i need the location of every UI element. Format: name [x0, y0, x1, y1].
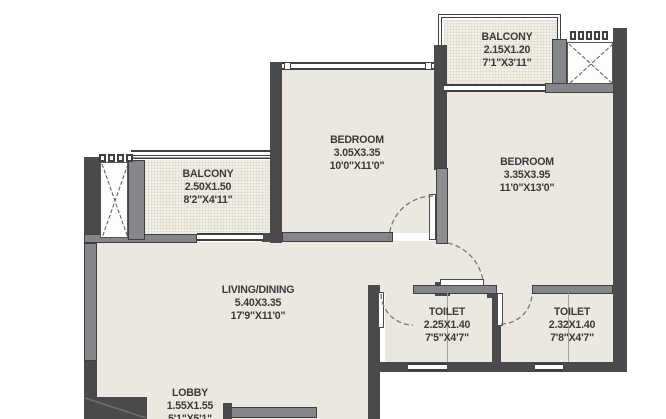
- toilet-1-door-leaf: [378, 292, 384, 328]
- room-label-toilet-1: TOILET 2.25X1.40 7'5"X4'7": [397, 306, 497, 345]
- bedroom-1-window-cap-left: [284, 62, 291, 70]
- room-label-toilet-2: TOILET 2.32X1.40 7'8"X4'7": [522, 306, 622, 345]
- bedroom-1-bottom-wall: [282, 232, 393, 242]
- bedroom-1-right-wall: [434, 45, 447, 170]
- railing-post: [99, 154, 106, 162]
- room-dim-ft: 8'2"X4'11": [148, 194, 267, 207]
- outer-wall-left-lower: [84, 360, 97, 399]
- room-dim-ft: 10'0"X11'0": [297, 160, 416, 173]
- room-label-living-dining: LIVING/DINING 5.40X3.35 17'9"X11'0": [198, 284, 317, 323]
- room-label-bedroom-1: BEDROOM 3.05X3.35 10'0"X11'0": [297, 134, 416, 173]
- room-dim-ft: 7'1"X3'11": [447, 57, 566, 70]
- room-label-bedroom-2: BEDROOM 3.35X3.95 11'0"X13'0": [467, 156, 586, 195]
- room-name: BALCONY: [447, 31, 566, 44]
- bedroom-1-top-window: [282, 62, 434, 70]
- toilet-2-top-wall: [532, 285, 613, 294]
- toilet-2-door-leaf: [497, 293, 503, 326]
- room-name: BEDROOM: [467, 156, 586, 169]
- room-name: BALCONY: [148, 168, 267, 181]
- room-dim-m: 3.05X3.35: [297, 147, 416, 160]
- living-window-end-stub: [262, 233, 272, 242]
- railing-post: [108, 154, 115, 162]
- room-label-balcony-top: BALCONY 2.15X1.20 7'1"X3'11": [447, 31, 566, 70]
- bedroom-1-door-leaf: [429, 194, 436, 240]
- railing-post: [602, 31, 608, 40]
- balcony-left-side-pillar: [128, 160, 145, 240]
- railing-post: [117, 154, 124, 162]
- room-label-balcony-left: BALCONY 2.50X1.50 8'2"X4'11": [148, 168, 267, 207]
- railing-post: [570, 31, 576, 40]
- room-dim-m: 2.32X1.40: [522, 319, 622, 332]
- room-dim-m: 3.35X3.95: [467, 169, 586, 182]
- room-dim-m: 2.50X1.50: [148, 181, 267, 194]
- room-name: BEDROOM: [297, 134, 416, 147]
- room-dim-m: 2.25X1.40: [397, 319, 497, 332]
- railing-post: [126, 154, 133, 162]
- room-dim-ft: 17'9"X11'0": [198, 310, 317, 323]
- duct-shaft-right-x-icon: [568, 43, 614, 85]
- room-dim-ft: 7'8"X4'7": [522, 332, 622, 345]
- room-label-lobby: LOBBY 1.55X1.55 5'1"X5'1": [130, 387, 249, 419]
- floor-plan: BALCONY 2.15X1.20 7'1"X3'11" BALCONY 2.5…: [0, 0, 666, 419]
- bedroom-2-door-leaf: [436, 168, 448, 244]
- room-dim-m: 5.40X3.35: [198, 297, 317, 310]
- outer-wall-left-upper: [84, 157, 100, 243]
- balcony-left-railing: [131, 150, 270, 160]
- room-dim-m: 1.55X1.55: [130, 400, 249, 413]
- railing-post: [578, 31, 584, 40]
- room-dim-ft: 11'0"X13'0": [467, 182, 586, 195]
- bedroom-1-left-wall: [270, 62, 282, 243]
- room-dim-ft: 5'1"X5'1": [130, 413, 249, 419]
- duct-shaft-right: [567, 42, 613, 84]
- room-dim-ft: 7'5"X4'7": [397, 332, 497, 345]
- railing-post: [586, 31, 592, 40]
- toilet-2-vent-window: [535, 363, 563, 371]
- corridor-door-leaf: [440, 279, 484, 286]
- living-balcony-sliding-window: [197, 233, 263, 241]
- balcony-top-sliding-window: [444, 84, 545, 92]
- living-left-window-wall: [84, 243, 97, 361]
- bedroom-1-window-cap-right: [425, 62, 432, 70]
- room-name: LOBBY: [130, 387, 249, 400]
- toilet-1-top-wall: [413, 285, 497, 294]
- room-name: TOILET: [522, 306, 622, 319]
- room-name: LIVING/DINING: [198, 284, 317, 297]
- duct-shaft-left-x-icon: [101, 163, 129, 239]
- duct-shaft-left: [100, 162, 128, 238]
- room-name: TOILET: [397, 306, 497, 319]
- room-dim-m: 2.15X1.20: [447, 44, 566, 57]
- toilet-1-vent-window: [408, 363, 447, 371]
- railing-post: [594, 31, 600, 40]
